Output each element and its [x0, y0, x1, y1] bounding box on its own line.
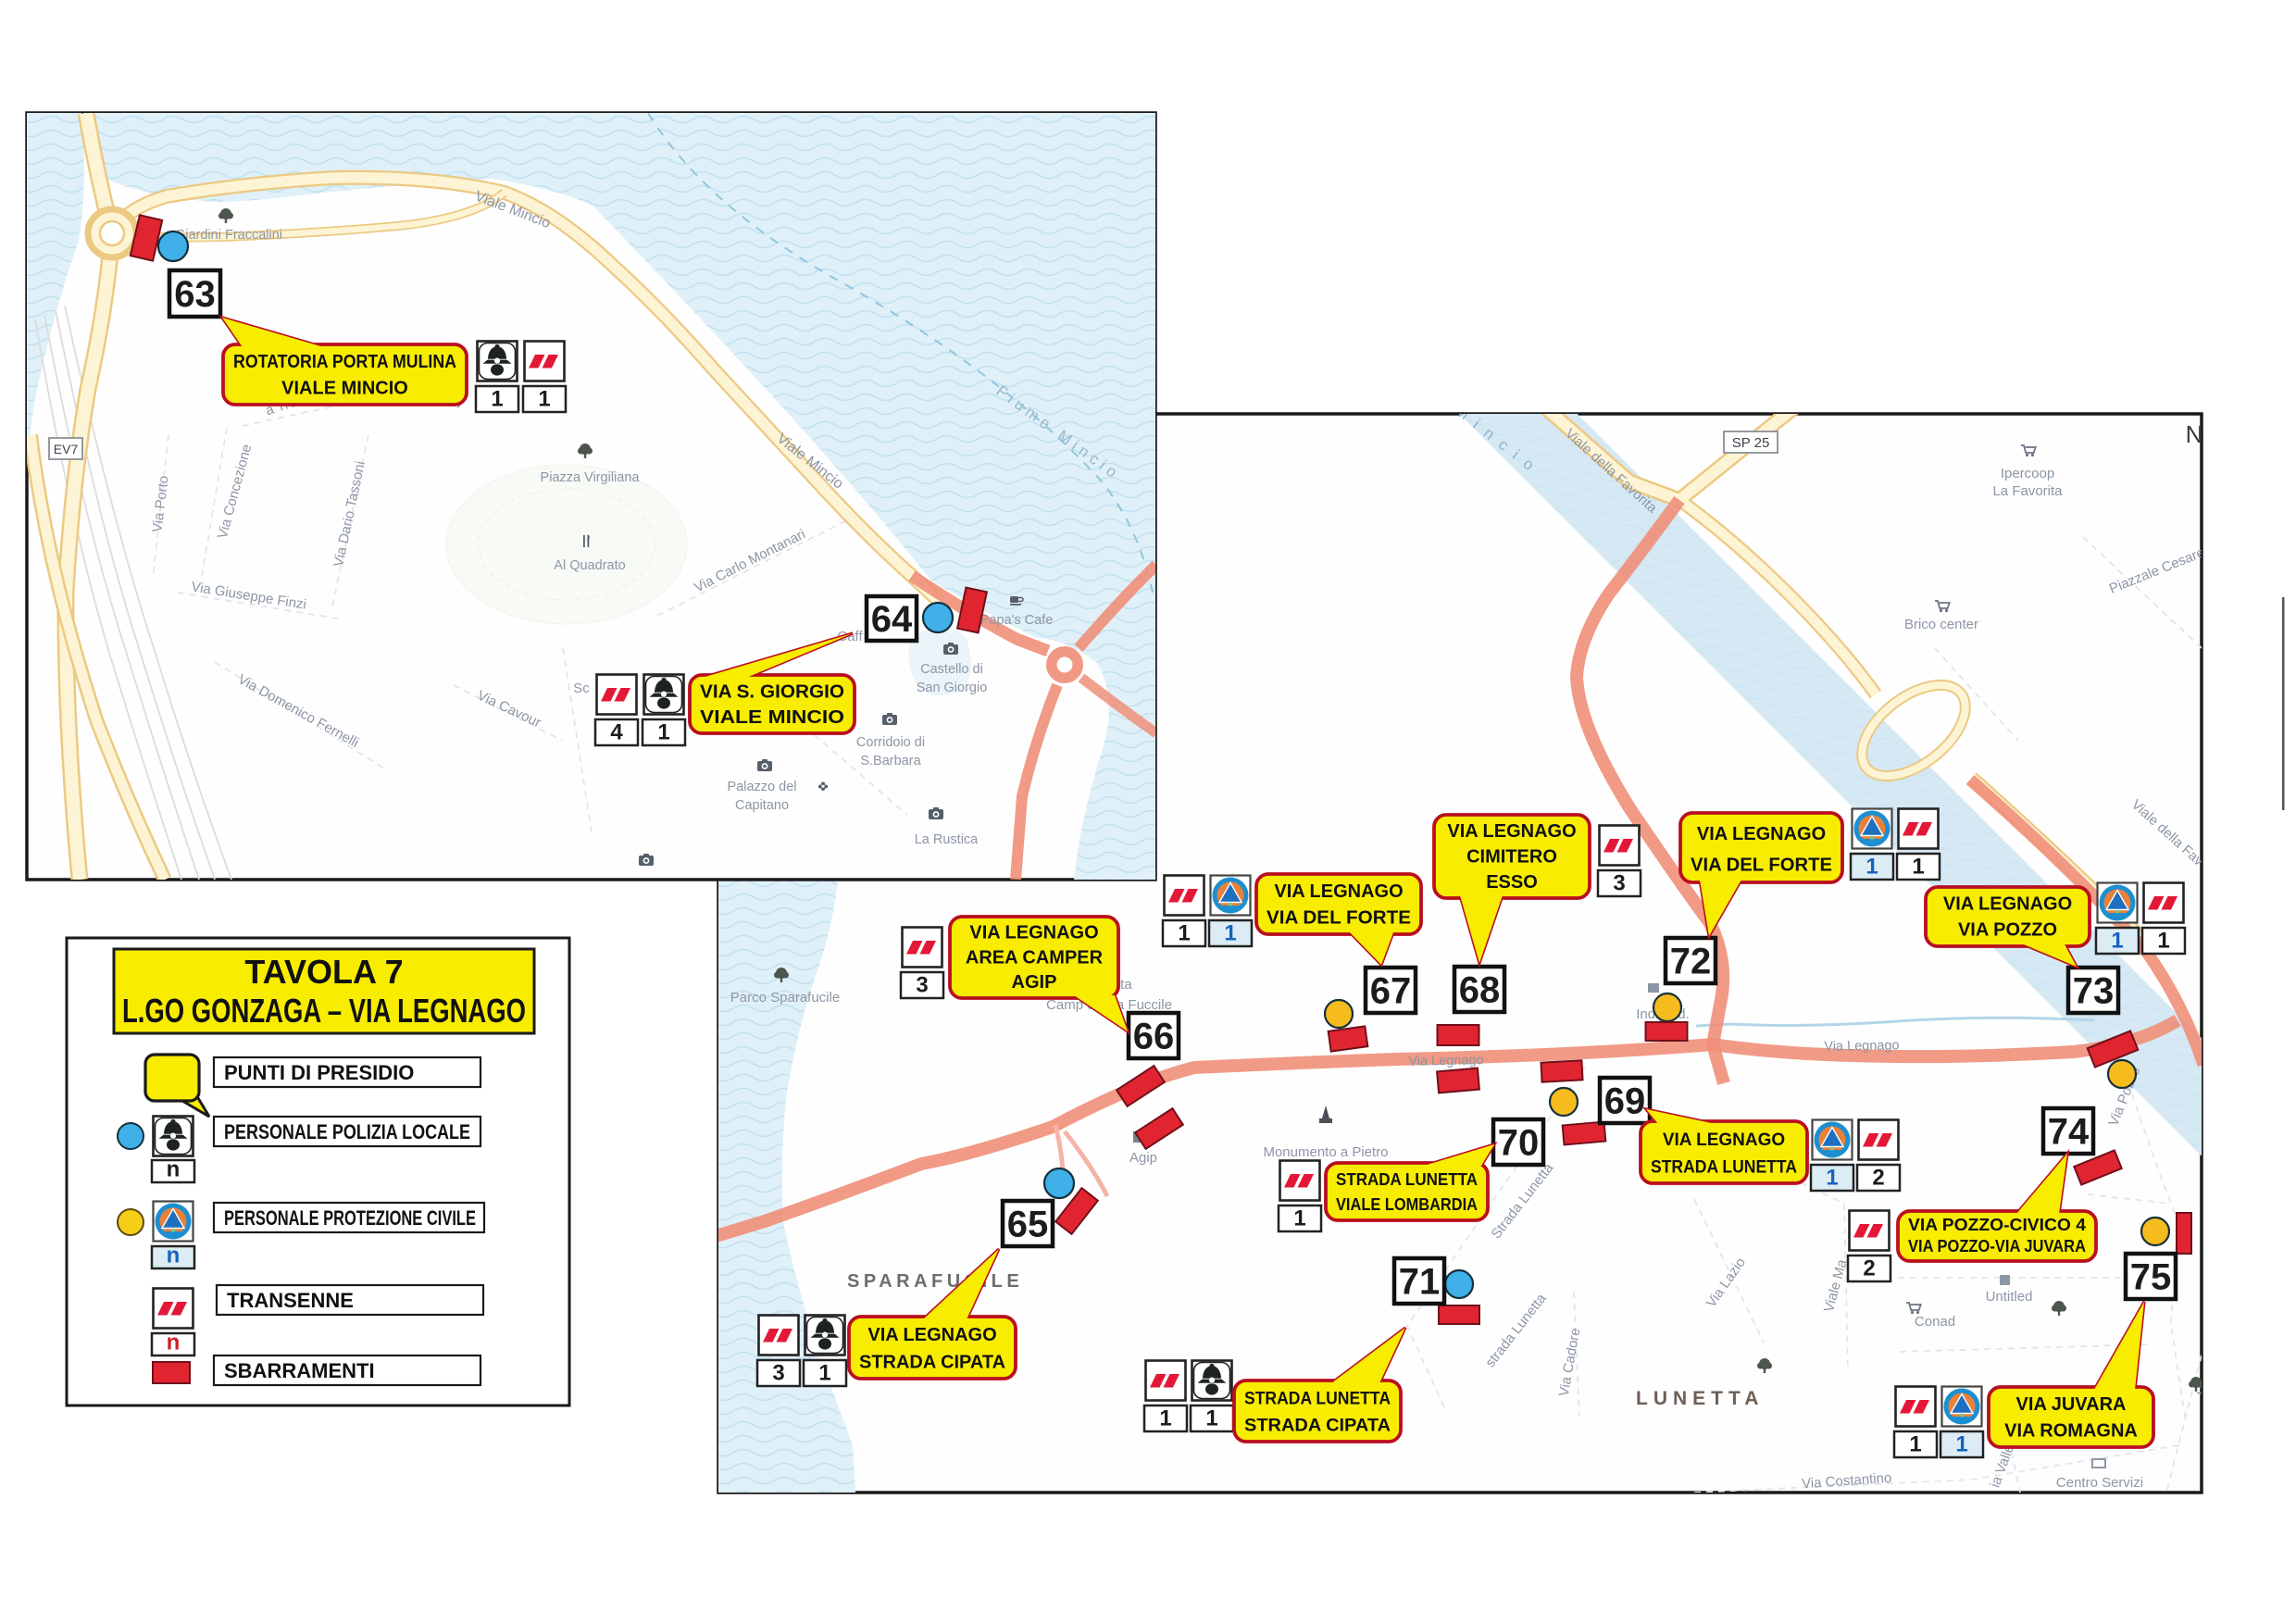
- svg-text:TAVOLA 7: TAVOLA 7: [244, 953, 403, 991]
- svg-text:PERSONALE POLIZIA LOCALE: PERSONALE POLIZIA LOCALE: [224, 1120, 470, 1143]
- svg-text:TRANSENNE: TRANSENNE: [227, 1289, 354, 1312]
- svg-text:n: n: [167, 1243, 181, 1268]
- svg-text:SBARRAMENTI: SBARRAMENTI: [224, 1359, 375, 1382]
- svg-text:PERSONALE PROTEZIONE CIVILE: PERSONALE PROTEZIONE CIVILE: [224, 1206, 476, 1230]
- svg-text:PUNTI DI PRESIDIO: PUNTI DI PRESIDIO: [224, 1061, 414, 1084]
- svg-text:n: n: [167, 1157, 181, 1182]
- svg-text:L.GO GONZAGA – VIA LEGNAGO: L.GO GONZAGA – VIA LEGNAGO: [122, 992, 526, 1030]
- svg-text:n: n: [167, 1330, 181, 1355]
